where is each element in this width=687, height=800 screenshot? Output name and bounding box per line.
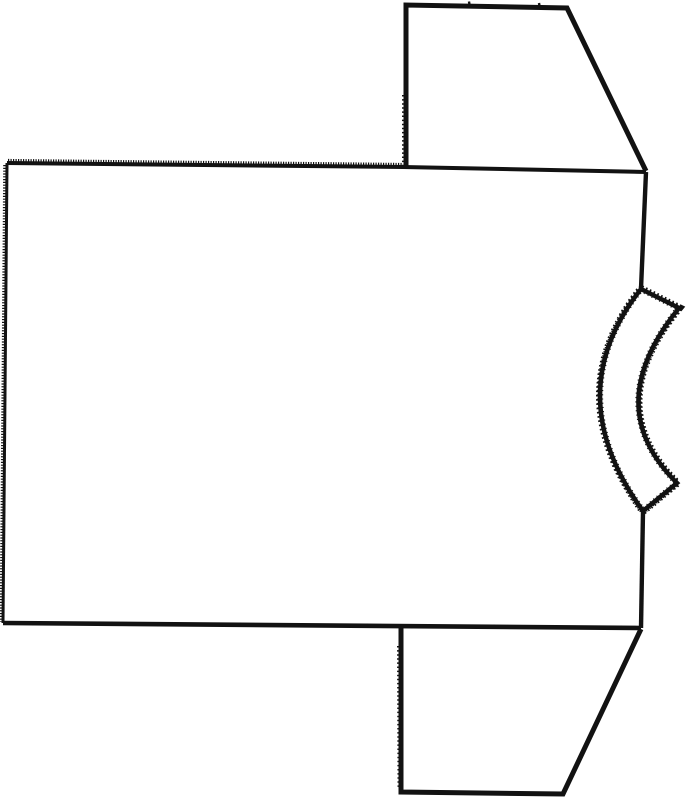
- sleeve-top-notch-2: [539, 3, 540, 9]
- body-right-edge-upper: [641, 172, 646, 289]
- body-hem-edge: [3, 623, 641, 628]
- sleeve-top-notch-1: [469, 2, 470, 9]
- body-side-seam: [3, 163, 7, 623]
- scanned-pattern-page: [0, 0, 687, 800]
- body-right-edge-lower: [641, 512, 643, 629]
- pattern-figure: [0, 0, 687, 800]
- sleeve-bottom-fold-dots: [398, 646, 399, 788]
- sleeve-top-outline: [406, 5, 646, 171]
- sleeve-bottom-outline: [401, 628, 641, 795]
- body-shoulder-seam: [7, 163, 646, 172]
